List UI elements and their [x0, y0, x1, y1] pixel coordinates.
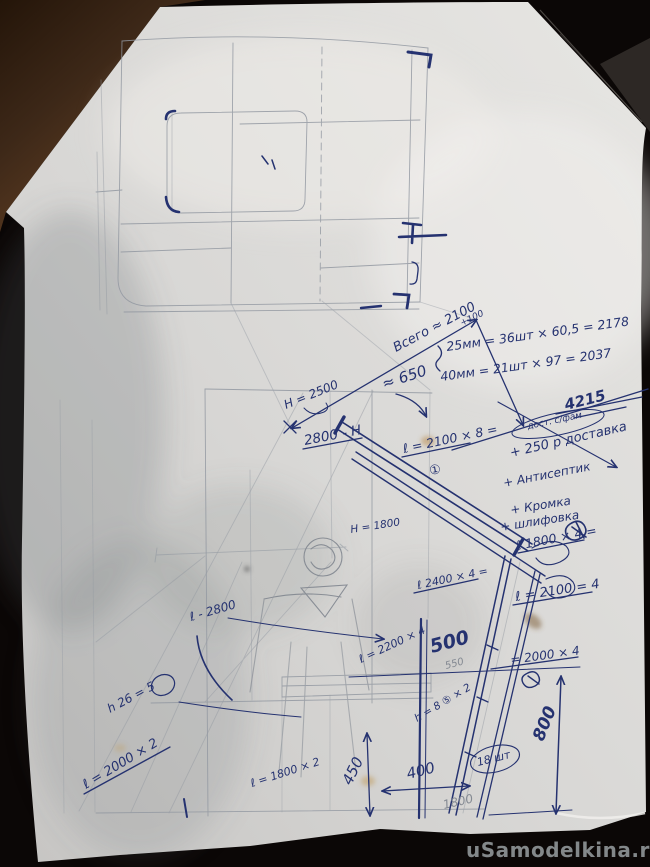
watermark-logo: uSamodelkina.ru [466, 838, 650, 862]
photo-of-sketch: Всего ≈ 2100 +100 25мм = 36шт × 60,5 = 2… [0, 0, 650, 867]
sketch-photo-svg: Всего ≈ 2100 +100 25мм = 36шт × 60,5 = 2… [0, 0, 650, 867]
